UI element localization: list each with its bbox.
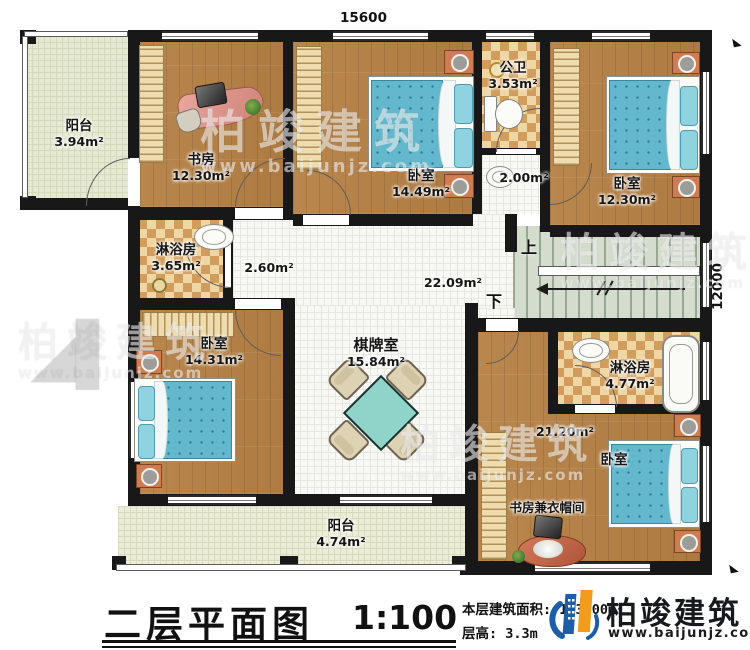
brand-url: www.baijunjz.com (608, 626, 750, 641)
pillow (138, 424, 155, 459)
room-area: 2.00m² (499, 170, 548, 185)
room-area: 15.84m² (347, 354, 405, 369)
watermark-logo-ghost: ◢▌ (30, 320, 122, 390)
wardrobe-bedroom-left (142, 312, 234, 337)
bathtub (662, 335, 700, 413)
railing-balcony-top (24, 31, 128, 37)
wall-stair-stub (505, 214, 517, 252)
label-game-room: 棋牌室 15.84m² (347, 336, 405, 369)
label-balcony-bottom: 阳台 4.74m² (316, 518, 365, 549)
window (701, 342, 711, 400)
room-area: 3.65m² (151, 258, 200, 273)
tick-arrow (730, 39, 743, 50)
dimension-top: 15600 (340, 10, 387, 26)
door-gap-bedroom-br (486, 319, 518, 331)
room-area: 3.94m² (54, 134, 103, 149)
nightstand (674, 414, 701, 437)
label-hall-small: 2.60m² (244, 260, 293, 275)
pillow (681, 448, 698, 484)
bed-sheet-bedroom-tr (666, 80, 680, 170)
pillow (138, 386, 155, 421)
window (592, 31, 650, 41)
room-area: 4.74m² (316, 534, 365, 549)
pillow (680, 130, 698, 170)
floor-height-line: 层高: 3.3m (462, 622, 538, 642)
nightstand (136, 464, 162, 488)
label-public-bath: 公卫 3.53m² (488, 60, 537, 91)
stair-arrow-line (545, 288, 685, 290)
label-bedroom-mid: 卧室 14.49m² (392, 168, 450, 199)
logo-mark-svg (548, 586, 600, 642)
window (162, 31, 258, 41)
nightstand (672, 176, 700, 198)
bed-sheet-bedroom-br (668, 444, 681, 524)
stair-rail (538, 266, 700, 276)
plant-study (245, 99, 261, 115)
dimension-right: 12000 (710, 263, 726, 310)
computer-monitor-cloakroom (533, 515, 563, 540)
stair-arrow-head (536, 283, 548, 295)
bed-bedroom-tr (609, 80, 671, 170)
label-bedroom-tr: 卧室 12.30m² (598, 176, 656, 207)
stairs-down-label: 下 (486, 288, 502, 312)
label-bedroom-br-name: 卧室 (601, 452, 628, 468)
title-underline-1 (102, 640, 456, 643)
label-bedroom-left: 卧室 14.31m² (185, 336, 243, 367)
label-hall: 22.09m² (424, 275, 482, 290)
sink-shower-right (572, 338, 610, 363)
room-name: 卧室 (601, 452, 628, 468)
window (701, 446, 711, 522)
room-name: 棋牌室 (347, 336, 405, 354)
wall-bedroom-left-right (283, 305, 295, 501)
room-name: 公卫 (488, 60, 537, 76)
room-name: 阳台 (54, 118, 103, 134)
window-balcony-door (340, 495, 432, 505)
wardrobe-bedroom-br (481, 432, 507, 560)
room-area: 21.20m² (536, 424, 594, 439)
brand-logo-icon (548, 586, 600, 642)
window (701, 72, 711, 154)
bed-sheet-bedroom-left (154, 381, 168, 459)
pillow (454, 128, 473, 168)
pillow (681, 487, 698, 523)
bed-bedroom-left (162, 381, 232, 459)
room-area: 3.53m² (488, 76, 537, 91)
nightstand (444, 50, 474, 74)
floor-drain-icon (152, 278, 167, 293)
wall-bath-right (540, 42, 550, 232)
railing-balcony-left (22, 36, 28, 198)
toilet-bowl (495, 99, 523, 129)
plant-cloakroom (512, 550, 525, 563)
room-area: 12.30m² (172, 168, 230, 183)
pillow (680, 86, 698, 126)
room-name: 书房兼衣帽间 (509, 500, 584, 515)
plan-scale: 1:100 (352, 598, 457, 637)
floor-plan-canvas: 上 下 阳台 3.94m² 书房 12.30m² 卧室 14.49m² 公卫 3… (0, 0, 750, 650)
label-bedroom-br-area: 21.20m² (536, 424, 594, 439)
room-name: 卧室 (598, 176, 656, 192)
window (486, 31, 534, 41)
room-area: 4.77m² (605, 376, 654, 391)
wall-shower-right-left (548, 332, 558, 412)
room-area: 12.30m² (598, 192, 656, 207)
room-area: 14.49m² (392, 184, 450, 199)
label-balcony-top: 阳台 3.94m² (54, 118, 103, 149)
bookshelf-study (139, 45, 164, 163)
door-gap-bedroom-left (235, 299, 281, 309)
door-gap-bedroom-mid (303, 215, 349, 225)
pillow (454, 84, 473, 124)
nightstand (136, 350, 162, 374)
room-name: 淋浴房 (151, 242, 200, 258)
nightstand (674, 530, 701, 553)
wall-bedroom-br-left (465, 303, 478, 563)
desk-pad (533, 540, 563, 558)
label-shower-right: 淋浴房 4.77m² (605, 360, 654, 391)
railing-balcony-bottom (116, 564, 466, 571)
room-name: 卧室 (185, 336, 243, 352)
room-area: 14.31m² (185, 352, 243, 367)
room-name: 阳台 (316, 518, 365, 534)
label-shower-left: 淋浴房 3.65m² (151, 242, 200, 273)
wall-bedroom-tr-bottom (550, 225, 712, 237)
nightstand (672, 52, 700, 74)
label-study: 书房 12.30m² (172, 152, 230, 183)
title-underline-2 (102, 646, 456, 648)
stairs-up-label: 上 (521, 234, 537, 258)
door-gap-study (235, 208, 283, 219)
label-wash: 2.00m² (499, 170, 548, 185)
wardrobe-bedroom-mid (296, 46, 322, 170)
room-area: 2.60m² (244, 260, 293, 275)
label-study-cloak: 书房兼衣帽间 (509, 500, 584, 515)
bed-bedroom-mid (371, 80, 443, 168)
room-area: 22.09m² (424, 275, 482, 290)
window (168, 495, 256, 505)
wardrobe-bedroom-tr (553, 48, 580, 166)
room-name: 淋浴房 (605, 360, 654, 376)
window (333, 31, 428, 41)
room-name: 卧室 (392, 168, 450, 184)
tick-arrow (727, 565, 740, 576)
room-name: 书房 (172, 152, 230, 168)
